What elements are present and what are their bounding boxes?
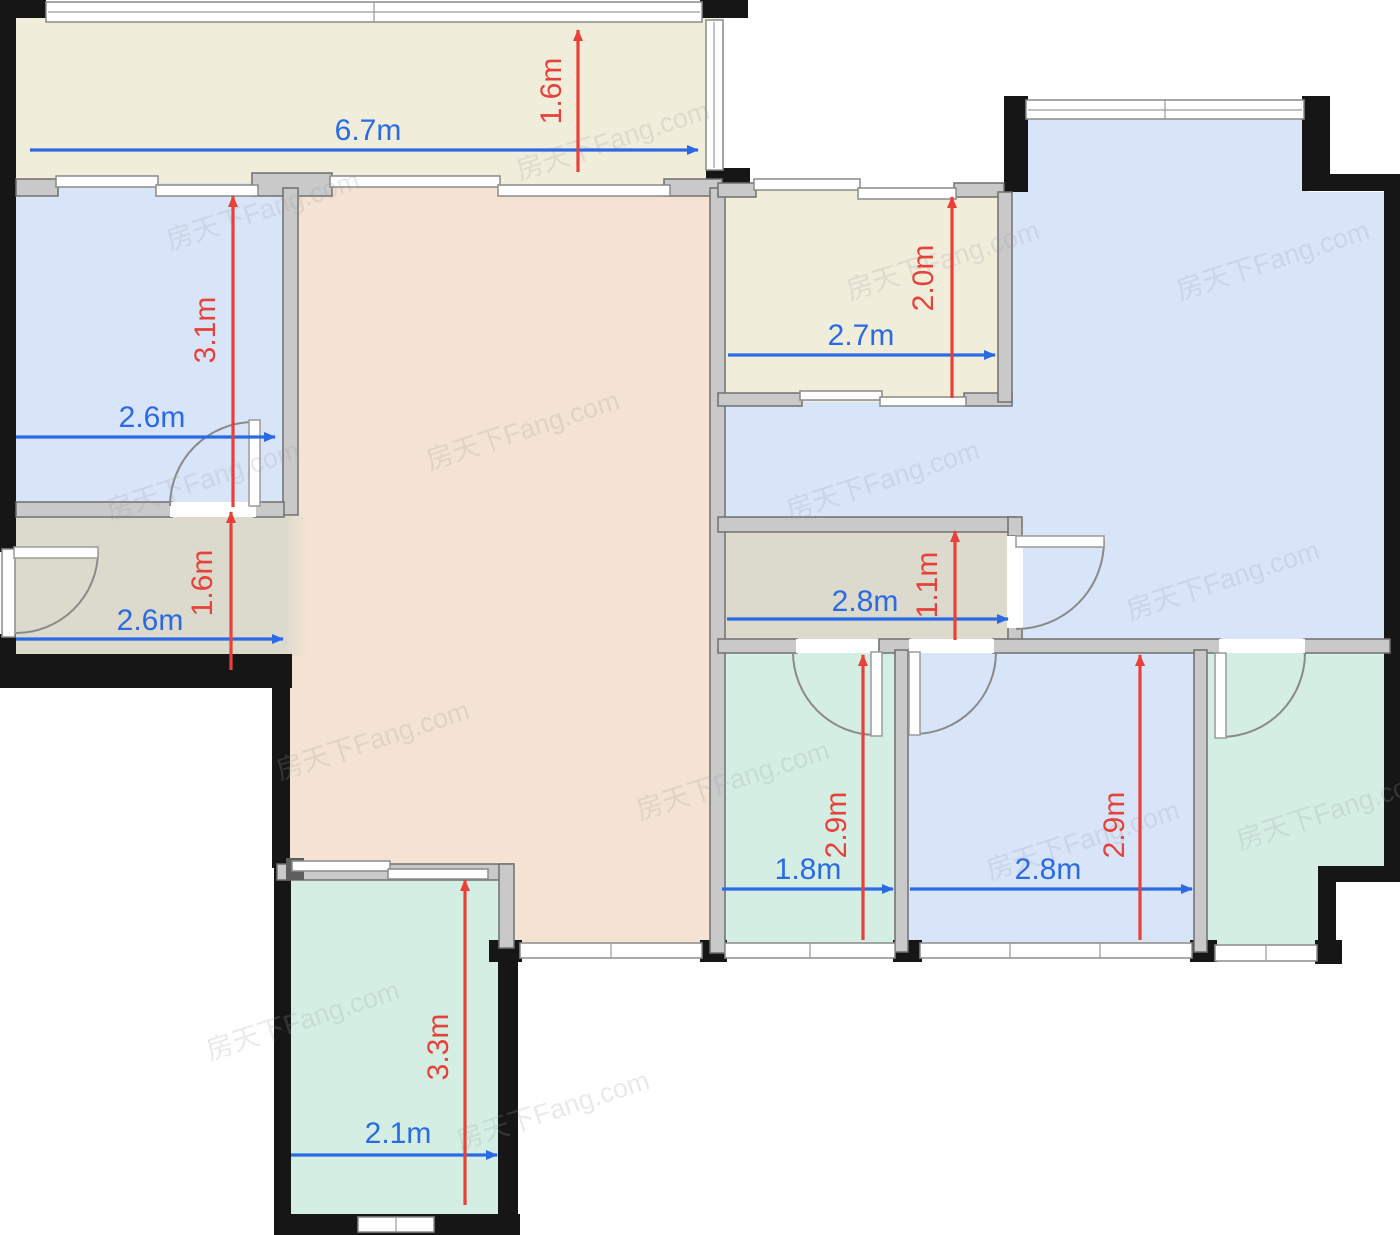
dim-label-room-mid-height: 2.0m: [907, 245, 940, 312]
dim-label-hall-mid-width: 2.8m: [832, 585, 899, 618]
room-living: [288, 186, 722, 954]
window-bedroom-br-bottom: [920, 943, 1192, 958]
wall-segment: [1304, 639, 1390, 653]
window-sliding: [388, 869, 488, 879]
hall-living-transition: [284, 516, 308, 656]
floorplan-svg: 房天下Fang.com 房天下Fang.com 房天下Fang.com 房天下F…: [0, 0, 1400, 1235]
dim-label-entry-hall-height: 1.6m: [186, 550, 219, 617]
door-opening: [1219, 639, 1305, 653]
door-opening: [796, 639, 878, 653]
door-leaf-bedroom-br: [909, 652, 920, 735]
door-leaf-green-right: [1215, 653, 1226, 738]
door-leaf-bath: [871, 652, 882, 736]
door-opening: [909, 639, 994, 653]
wall-segment: [710, 188, 725, 953]
wall-segment: [895, 650, 908, 952]
window-sliding: [880, 397, 966, 406]
dim-label-entry-hall-width: 2.6m: [117, 604, 184, 637]
window-sliding: [156, 185, 258, 196]
dim-label-bedroom-left-height: 3.1m: [189, 297, 222, 364]
wall-segment: [718, 393, 802, 406]
dim-label-bedroom-br-width: 2.8m: [1015, 853, 1082, 886]
wall-segment: [0, 654, 292, 688]
room-green-right-a: [1202, 646, 1394, 878]
wall-segment: [1004, 96, 1028, 192]
wall-segment: [718, 639, 797, 653]
dim-label-hall-mid-height: 1.1m: [911, 552, 944, 619]
room-entry-hall: [8, 512, 290, 664]
dim-label-bedroom-br-height: 2.9m: [1098, 792, 1131, 859]
door-opening: [1007, 536, 1023, 628]
window-sliding: [754, 179, 860, 190]
door-leaf-hall-blue: [1016, 536, 1104, 547]
window-sliding: [858, 188, 956, 199]
wall-segment: [718, 517, 1016, 532]
dim-label-room-bl-width: 2.1m: [365, 1117, 432, 1150]
wall-segment: [718, 183, 756, 197]
wall-segment: [274, 864, 291, 1235]
room-green-right-b: [1202, 860, 1332, 954]
dim-label-room-bl-height: 3.3m: [422, 1014, 455, 1081]
dim-label-balcony-height: 1.6m: [535, 58, 568, 125]
window-sliding: [800, 391, 882, 400]
entry-door-sill: [2, 549, 15, 637]
door-opening: [170, 502, 256, 517]
window-sliding: [292, 861, 390, 871]
room-bedroom-br: [906, 646, 1202, 952]
dim-label-bath-height: 2.9m: [820, 792, 853, 859]
wall-segment: [498, 946, 518, 1235]
wall-segment: [954, 183, 1004, 197]
wall-segment: [1194, 650, 1207, 952]
room-green-bl: [282, 866, 508, 1224]
wall-segment: [1384, 174, 1400, 878]
door-leaf-entry: [14, 547, 98, 558]
wall-segment: [1302, 96, 1330, 191]
wall-segment: [700, 0, 748, 18]
dim-label-balcony-width: 6.7m: [335, 114, 402, 147]
dim-label-room-mid-width: 2.7m: [828, 319, 895, 352]
wall-segment: [1318, 868, 1336, 962]
wall-segment: [0, 12, 16, 552]
floorplan-canvas: 房天下Fang.com 房天下Fang.com 房天下Fang.com 房天下F…: [0, 0, 1400, 1235]
wall-segment: [16, 179, 58, 196]
window-sliding: [498, 185, 670, 196]
window-sliding: [56, 176, 158, 187]
wall-segment: [499, 864, 514, 948]
dim-label-bedroom-left-width: 2.6m: [119, 401, 186, 434]
wall-segment: [1008, 517, 1022, 536]
wall-segment: [993, 639, 1220, 653]
room-balcony-top: [8, 4, 724, 194]
